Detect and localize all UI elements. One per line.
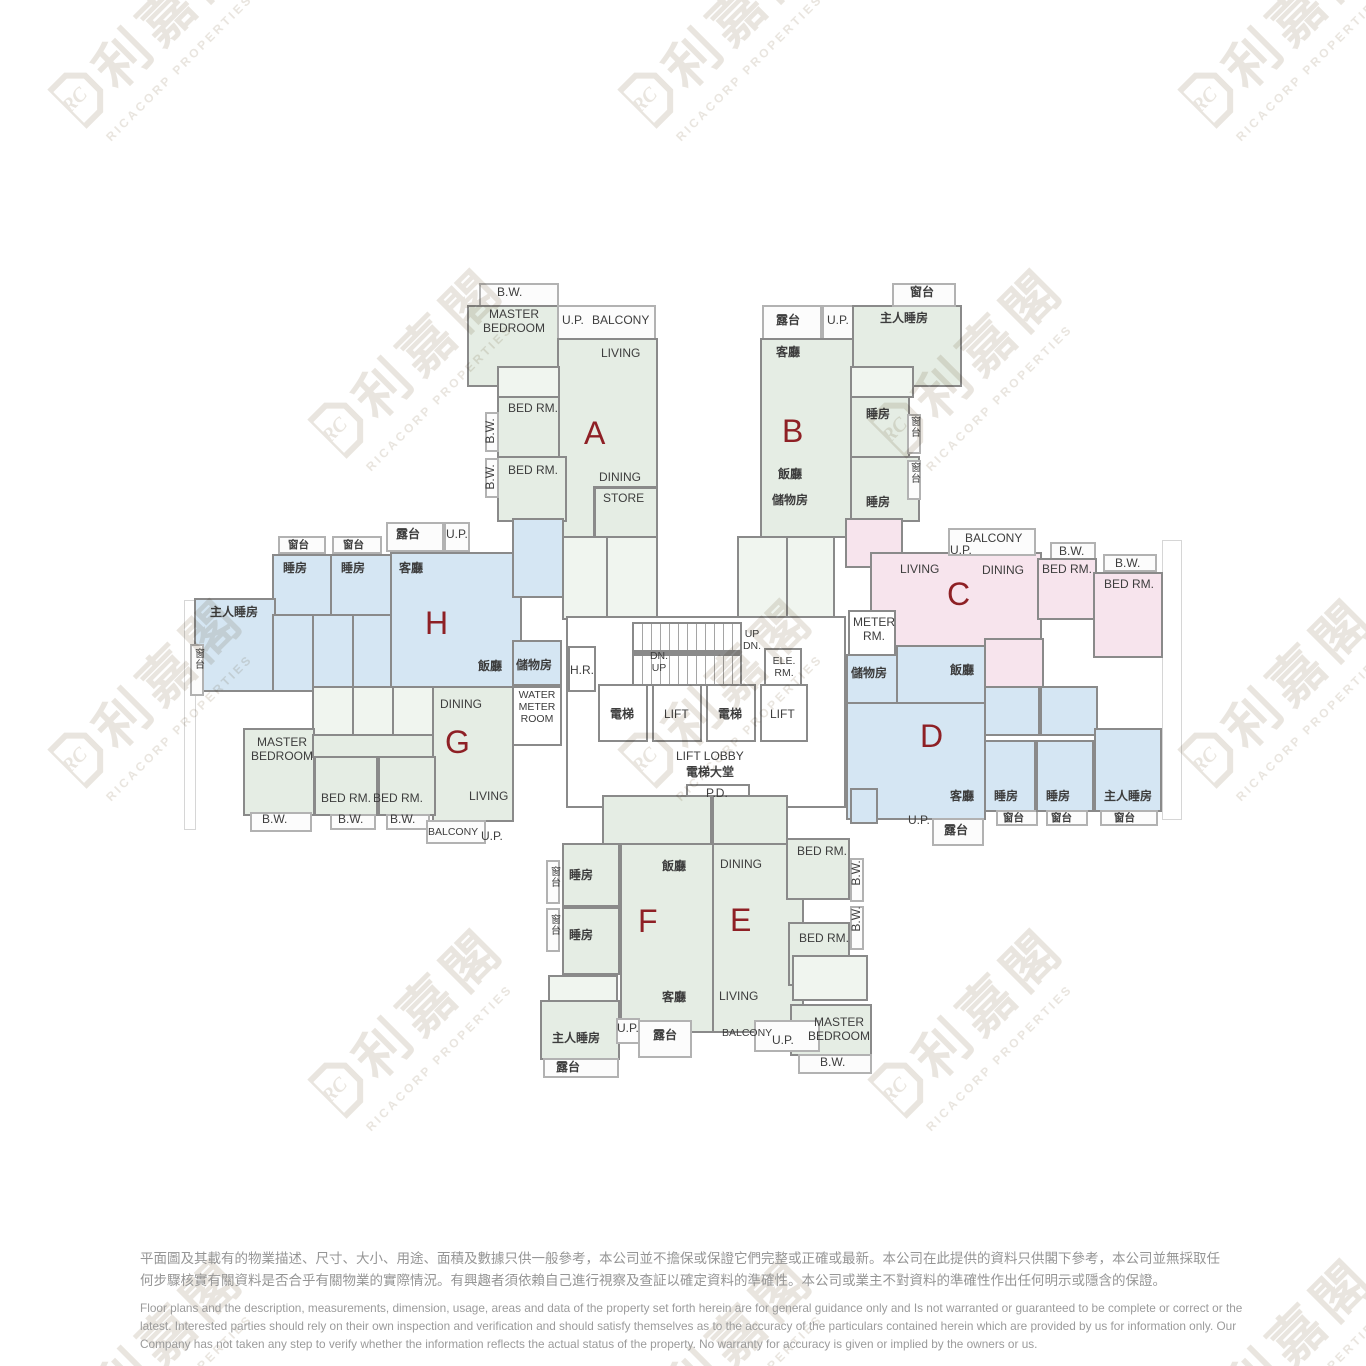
label-b-dining: 飯廳	[778, 468, 802, 482]
label-e-up: U.P.	[772, 1034, 794, 1048]
label-g-bw-master: B.W.	[262, 813, 287, 827]
room-g-bathrooms	[312, 686, 434, 736]
label-c-living: LIVING	[900, 563, 939, 577]
label-h-master-suite: 主人睡房	[210, 606, 258, 620]
label-c-balcony: BALCONY	[965, 532, 1022, 546]
label-e-bedroom-2: BED RM.	[799, 932, 849, 946]
label-g-dining: DINING	[440, 698, 482, 712]
label-h-store-room: 儲物房	[516, 659, 552, 673]
label-h-bedroom-2: 睡房	[341, 562, 365, 576]
label-meter-room: METER RM.	[852, 616, 896, 644]
disclaimer-zh-line2: 何步驟核實有關資料是否合乎有關物業的實際情況。有興趣者須依賴自己進行視察及查証以…	[140, 1270, 1238, 1292]
label-c-bw-1: B.W.	[1059, 545, 1084, 559]
label-h-bay-left: 窗台	[192, 648, 204, 670]
label-g-bw-2: B.W.	[390, 813, 415, 827]
label-d-bay-2: 窗台	[1051, 812, 1072, 824]
label-h-balcony: 露台	[396, 528, 420, 542]
label-stairs-dn-up: DN. UP	[645, 650, 673, 674]
label-d-bedroom-2: 睡房	[1046, 790, 1070, 804]
label-b-bay-top: 窗台	[910, 286, 934, 300]
label-e-bw-1: B.W.	[850, 857, 864, 889]
room-a-living-dining	[557, 338, 658, 538]
label-f-master-suite: 主人睡房	[552, 1032, 600, 1046]
label-d-store-room: 儲物房	[851, 667, 887, 681]
label-lift-3: 電梯	[718, 708, 742, 722]
label-b-master-suite: 主人睡房	[880, 312, 928, 326]
label-c-up: U.P.	[950, 544, 972, 558]
label-a-store: STORE	[603, 492, 644, 506]
label-g-living: LIVING	[469, 790, 508, 804]
room-b-bathroom	[850, 366, 914, 398]
label-a-balcony: BALCONY	[592, 314, 649, 328]
room-g-corridor	[312, 734, 434, 758]
label-b-living: 客廳	[776, 346, 800, 360]
label-e-bw-2: B.W.	[850, 903, 864, 935]
disclaimer: 平面圖及其載有的物業描述、尺寸、大小、用途、面積及數據只供一般參考，本公司並不擔…	[140, 1248, 1238, 1353]
label-a-bw-1: B.W.	[484, 415, 498, 447]
label-b-bay-2: 窗台	[908, 462, 920, 484]
label-d-master-suite: 主人睡房	[1104, 790, 1152, 804]
label-water-meter-room: WATER METER ROOM	[514, 689, 560, 725]
label-a-bw-top: B.W.	[497, 286, 522, 300]
label-f-living: 客廳	[662, 991, 686, 1005]
label-d-balcony: 露台	[944, 824, 968, 838]
label-f-bedroom-1: 睡房	[569, 869, 593, 883]
disclaimer-en-line3: Company has not taken any step to verify…	[140, 1335, 1238, 1353]
label-lift-lobby-en: LIFT LOBBY	[676, 750, 744, 764]
label-e-bw-bottom: B.W.	[820, 1056, 845, 1070]
label-b-bedroom-1: 睡房	[866, 408, 890, 422]
room-d-bathroom-1	[984, 686, 1040, 736]
label-a-master-bedroom: MASTER BEDROOM	[477, 308, 551, 336]
label-f-dining: 飯廳	[662, 860, 686, 874]
label-e-living: LIVING	[719, 990, 758, 1004]
room-h-bathrooms	[272, 614, 392, 692]
wall-h-bath-2	[352, 614, 354, 692]
label-h-bay-2: 窗台	[343, 539, 364, 551]
label-d-dining: 飯廳	[950, 664, 974, 678]
room-b-bedroom-1	[850, 396, 910, 458]
label-hose-reel: H.R.	[570, 664, 594, 678]
label-lift-1: 電梯	[610, 708, 634, 722]
label-g-master-bedroom: MASTER BEDROOM	[247, 736, 317, 764]
wall-a-service	[606, 536, 608, 620]
building-envelope-right	[1162, 540, 1182, 820]
room-h-upper-store	[512, 518, 564, 598]
label-g-balcony: BALCONY	[428, 826, 478, 838]
label-lift-2: LIFT	[664, 708, 689, 722]
label-h-up: U.P.	[446, 528, 468, 542]
room-e-bathroom-lower	[792, 955, 868, 1001]
label-a-up: U.P.	[562, 314, 584, 328]
label-h-living: 客廳	[399, 562, 423, 576]
room-f-master-bedroom	[540, 1000, 620, 1060]
label-f-bay-2: 窗台	[548, 914, 560, 936]
label-f-balcony-bottom: 露台	[556, 1061, 580, 1075]
room-g-bedroom-1	[314, 756, 378, 816]
wall-g-bath-2	[392, 686, 394, 736]
room-a-bathroom	[497, 366, 560, 398]
room-g-bedroom-2	[378, 756, 436, 816]
label-d-up: U.P.	[908, 814, 930, 828]
label-f-bay-1: 窗台	[548, 866, 560, 888]
wall-g-bath-1	[352, 686, 354, 736]
wall-a-store-v	[593, 486, 596, 538]
label-lift-4: LIFT	[770, 708, 795, 722]
label-g-bedroom-2: BED RM.	[373, 792, 423, 806]
label-a-dining: DINING	[599, 471, 641, 485]
unit-letter-f: F	[638, 905, 658, 937]
label-d-bay-3: 窗台	[1114, 812, 1135, 824]
disclaimer-zh-line1: 平面圖及其載有的物業描述、尺寸、大小、用途、面積及數據只供一般參考，本公司並不擔…	[140, 1248, 1238, 1270]
room-a-kitchen-service	[562, 536, 658, 620]
wall-a-store	[595, 486, 658, 489]
label-h-bedroom-1: 睡房	[283, 562, 307, 576]
room-d-annex	[850, 788, 878, 824]
room-f-bathroom-lower	[548, 975, 618, 1003]
label-e-dining: DINING	[720, 858, 762, 872]
label-electrical-room: ELE. RM.	[766, 655, 802, 679]
room-c-bathroom	[984, 638, 1044, 688]
unit-letter-d: D	[920, 720, 943, 752]
label-a-living: LIVING	[601, 347, 640, 361]
label-h-bay-1: 窗台	[288, 539, 309, 551]
label-a-bedroom-2: BED RM.	[508, 464, 558, 478]
room-f-balcony-bottom	[543, 1058, 619, 1078]
unit-letter-g: G	[445, 726, 470, 758]
floor-plan: B.W. MASTER BEDROOM U.P. BALCONY LIVING …	[0, 0, 1366, 1366]
label-e-master-bedroom: MASTER BEDROOM	[806, 1016, 872, 1044]
label-b-bedroom-2: 睡房	[866, 496, 890, 510]
label-g-bw-1: B.W.	[338, 813, 363, 827]
room-b-living-dining	[760, 338, 857, 538]
label-b-up: U.P.	[827, 314, 849, 328]
disclaimer-en-line1: Floor plans and the description, measure…	[140, 1299, 1238, 1317]
label-b-bay-1: 窗台	[908, 416, 920, 438]
room-f-bathrooms	[602, 795, 712, 847]
label-d-living: 客廳	[950, 790, 974, 804]
label-d-bedroom-1: 睡房	[994, 790, 1018, 804]
label-f-balcony: 露台	[653, 1029, 677, 1043]
label-f-up: U.P.	[617, 1022, 639, 1036]
disclaimer-en-line2: latest. Interested parties should rely o…	[140, 1317, 1238, 1335]
unit-letter-e: E	[730, 904, 751, 936]
unit-letter-c: C	[947, 578, 970, 610]
wall-b-service	[786, 536, 788, 620]
label-a-bedroom-1: BED RM.	[508, 402, 558, 416]
floor-plan-page: B.W. MASTER BEDROOM U.P. BALCONY LIVING …	[0, 0, 1366, 1366]
label-g-bedroom-1: BED RM.	[321, 792, 371, 806]
label-e-balcony: BALCONY	[722, 1027, 772, 1039]
wall-h-bath-1	[312, 614, 314, 692]
label-g-up: U.P.	[481, 830, 503, 844]
label-e-bedroom-1: BED RM.	[797, 845, 847, 859]
label-c-bedroom-2: BED RM.	[1104, 578, 1154, 592]
room-d-bathroom-2	[1040, 686, 1098, 736]
label-f-bedroom-2: 睡房	[569, 929, 593, 943]
room-e-bathrooms	[712, 795, 788, 847]
label-pipe-duct: P.D.	[706, 787, 728, 801]
label-b-store-room: 儲物房	[772, 494, 808, 508]
label-b-balcony: 露台	[776, 314, 800, 328]
label-stairs-up-dn: UP DN.	[738, 628, 766, 652]
label-c-bedroom-1: BED RM.	[1042, 563, 1092, 577]
label-h-dining: 飯廳	[478, 660, 502, 674]
label-c-bw-2: B.W.	[1115, 557, 1140, 571]
label-a-bw-2: B.W.	[484, 461, 498, 493]
unit-letter-a: A	[584, 417, 605, 449]
label-lift-lobby-zh: 電梯大堂	[686, 766, 734, 780]
label-c-dining: DINING	[982, 564, 1024, 578]
unit-letter-h: H	[425, 607, 448, 639]
unit-letter-b: B	[782, 415, 803, 447]
label-d-bay-1: 窗台	[1003, 812, 1024, 824]
